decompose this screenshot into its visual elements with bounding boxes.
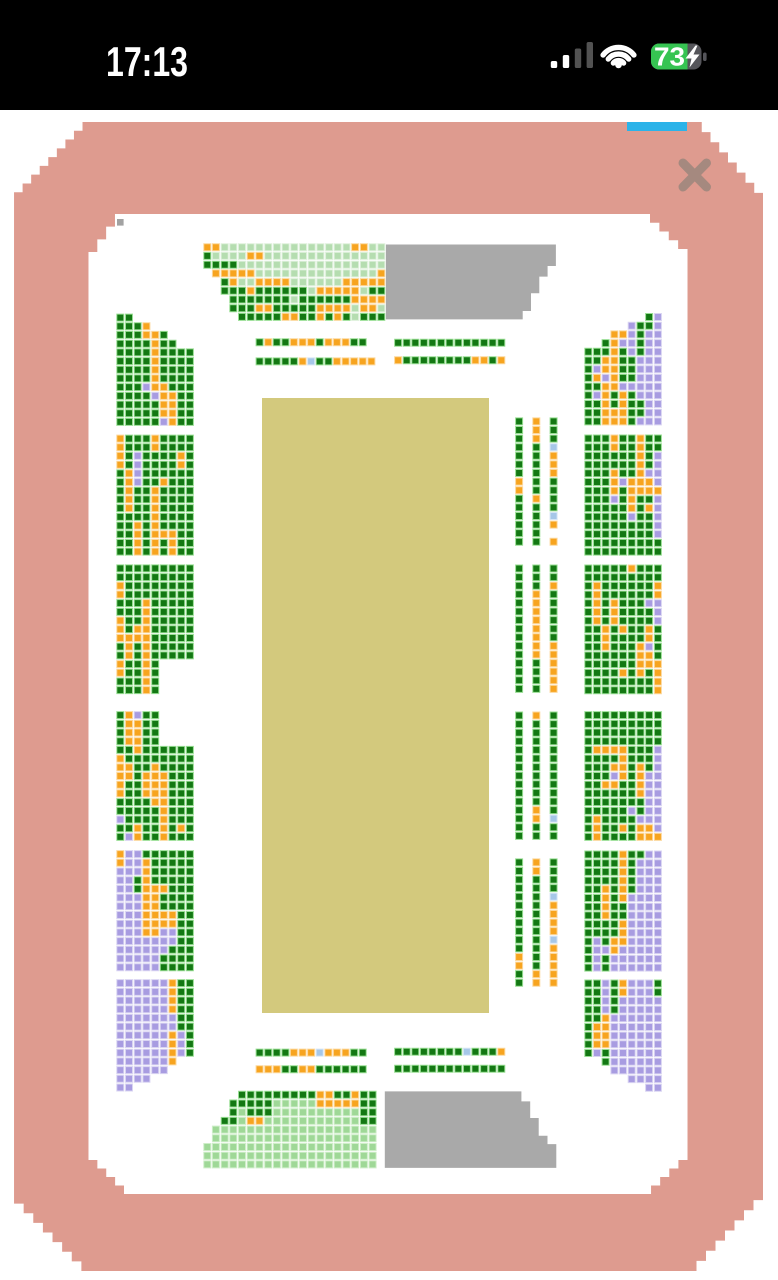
svg-text:73: 73	[654, 42, 685, 72]
svg-text:17:13: 17:13	[106, 38, 188, 85]
